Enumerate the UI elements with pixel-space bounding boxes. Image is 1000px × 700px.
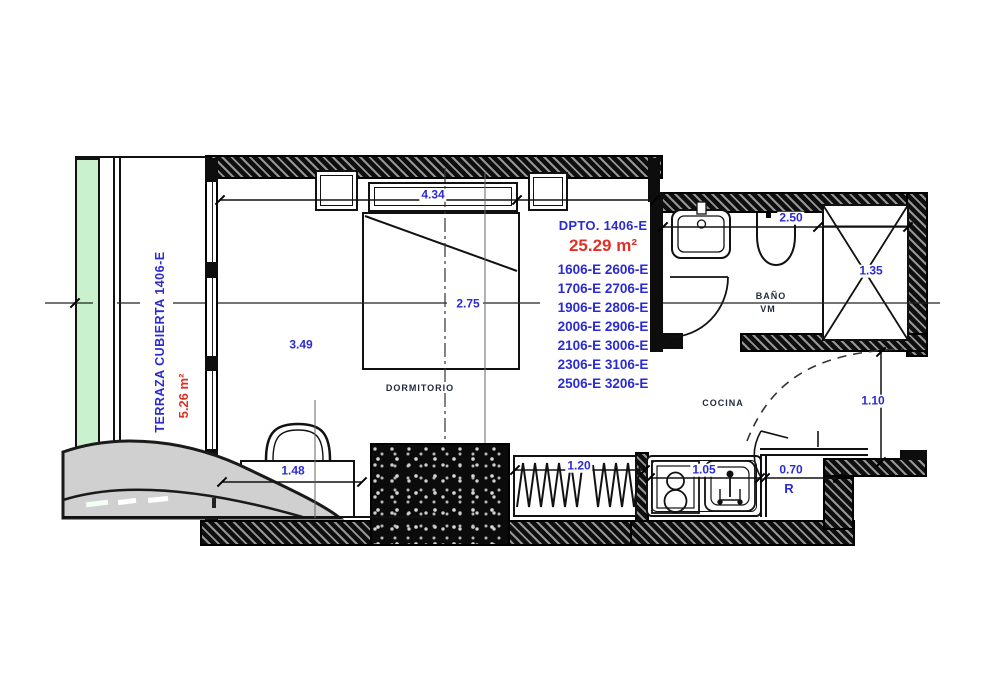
bath-label-line1: BAÑO xyxy=(754,291,789,301)
bath-sink xyxy=(672,202,730,258)
dim-bath-width: 2.50 xyxy=(777,212,804,225)
unit-info-block: DPTO. 1406-E 25.29 m² 1606-E 2606-E 1706… xyxy=(538,218,668,393)
floor-plan: 4.34 2.50 1.35 2.75 3.49 1.10 1.48 1.20 … xyxy=(0,0,1000,700)
unit-stack-line: 1706-E 2706-E xyxy=(538,279,668,298)
unit-title: DPTO. 1406-E xyxy=(538,218,668,233)
dim-desk: 1.48 xyxy=(279,465,306,478)
kitchen-label: COCINA xyxy=(700,398,746,408)
dim-fridge-nook: 0.70 xyxy=(777,464,804,477)
unit-stack-line: 2006-E 2906-E xyxy=(538,317,668,336)
bath-label-line2: VM xyxy=(758,304,778,314)
bed-fold-line xyxy=(365,216,517,271)
fridge-label: R xyxy=(782,482,795,496)
plan-linework xyxy=(0,0,1000,700)
curved-facade xyxy=(63,441,433,518)
dim-leader-dot xyxy=(766,213,771,218)
terrace-label: TERRAZA CUBIERTA 1406-E xyxy=(153,242,173,442)
unit-stack-line: 2506-E 3206-E xyxy=(538,374,668,393)
unit-stack-line: 2106-E 3006-E xyxy=(538,336,668,355)
dim-entry: 1.10 xyxy=(859,395,886,408)
terrace-area-label: 5.26 m² xyxy=(176,336,196,456)
dim-bed-center: 2.75 xyxy=(454,298,481,311)
dim-closet: 1.20 xyxy=(565,460,592,473)
unit-stack-line: 1906-E 2806-E xyxy=(538,298,668,317)
bedroom-label: DORMITORIO xyxy=(384,383,456,393)
dim-counter: 1.05 xyxy=(690,464,717,477)
dim-bedroom-width: 4.34 xyxy=(419,189,446,202)
unit-stack-line: 1606-E 2606-E xyxy=(538,260,668,279)
desk-chair xyxy=(266,424,330,460)
dim-bedroom-depth: 3.49 xyxy=(287,339,314,352)
unit-area: 25.29 m² xyxy=(538,236,668,256)
bath-door xyxy=(670,277,728,337)
unit-stack-line: 2306-E 3106-E xyxy=(538,355,668,374)
dim-shower: 1.35 xyxy=(857,265,884,278)
